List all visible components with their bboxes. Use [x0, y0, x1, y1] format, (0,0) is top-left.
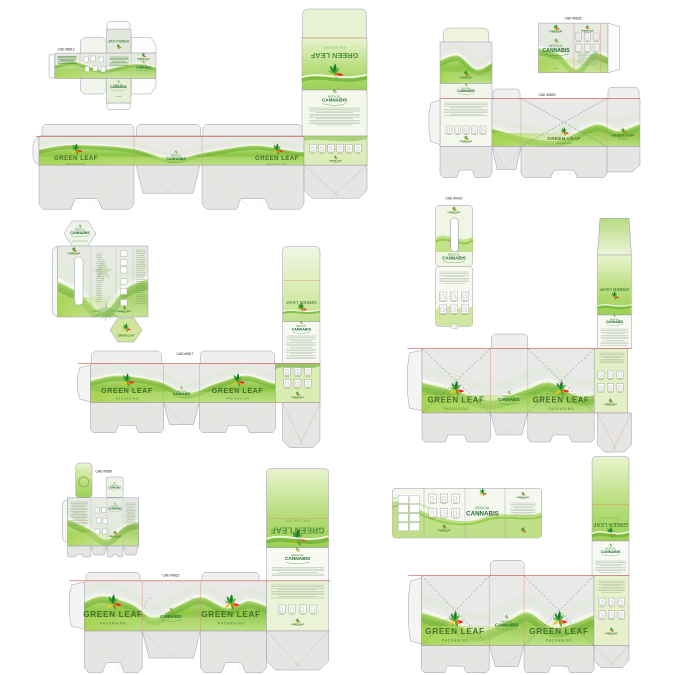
svg-text:CANNABIS: CANNABIS [457, 89, 475, 93]
svg-text:CANNABIS: CANNABIS [108, 506, 122, 510]
svg-text:net wt: net wt [116, 95, 122, 98]
svg-text:CANNABIS: CANNABIS [542, 48, 570, 54]
svg-text:P A C K A G I N G: P A C K A G I N G [100, 621, 126, 625]
svg-text:CANNABIS: CANNABIS [442, 255, 465, 260]
svg-text:GREEN LEAF: GREEN LEAF [550, 30, 564, 33]
svg-text:P A C K A G I N G: P A C K A G I N G [323, 46, 345, 50]
svg-text:CAD #9420: CAD #9420 [445, 197, 462, 201]
svg-text:GREEN LEAF: GREEN LEAF [604, 403, 618, 406]
svg-text:GREEN LEAF: GREEN LEAF [310, 51, 358, 60]
svg-text:GREEN LEAF: GREEN LEAF [108, 39, 129, 43]
svg-text:CANNABIS: CANNABIS [110, 85, 127, 89]
svg-text:GREEN LEAF: GREEN LEAF [101, 387, 153, 395]
svg-text:GREEN LEAF: GREEN LEAF [68, 252, 82, 255]
svg-text:GREEN LEAF: GREEN LEAF [600, 287, 630, 292]
svg-text:CANNABIS: CANNABIS [108, 486, 121, 489]
svg-text:GREEN LEAF: GREEN LEAF [592, 521, 627, 527]
svg-text:CAD #9817: CAD #9817 [176, 352, 193, 356]
svg-text:MEDICAL: MEDICAL [475, 506, 490, 510]
svg-text:CANNABIS: CANNABIS [601, 550, 621, 554]
svg-text:GREEN LEAF: GREEN LEAF [118, 334, 135, 338]
svg-text:CAD #9825: CAD #9825 [564, 17, 581, 21]
svg-text:P A C K A G I N G: P A C K A G I N G [546, 638, 572, 642]
svg-text:GREEN LEAF: GREEN LEAF [533, 396, 590, 405]
svg-text:GREEN LEAF: GREEN LEAF [329, 159, 343, 162]
svg-text:GREEN LEAF: GREEN LEAF [109, 535, 123, 538]
svg-text:GREEN LEAF: GREEN LEAF [611, 134, 634, 138]
svg-text:GREEN LEAF: GREEN LEAF [605, 632, 619, 635]
svg-text:CAD #9587: CAD #9587 [95, 469, 112, 473]
svg-text:GREEN LEAF: GREEN LEAF [212, 387, 264, 395]
svg-text:CANNABIS: CANNABIS [606, 320, 624, 324]
svg-text:P A C K A G I N G: P A C K A G I N G [218, 621, 244, 625]
svg-text:GREEN LEAF: GREEN LEAF [460, 76, 474, 79]
svg-text:GREEN LEAF: GREEN LEAF [581, 29, 595, 32]
svg-text:CANNABIS: CANNABIS [173, 392, 191, 396]
svg-text:GREEN LEAF: GREEN LEAF [428, 396, 485, 405]
svg-text:GREEN LEAF: GREEN LEAF [255, 156, 299, 162]
svg-text:CANNABIS: CANNABIS [70, 231, 90, 235]
svg-text:CANNABIS: CANNABIS [322, 98, 348, 104]
svg-text:CANNABIS: CANNABIS [466, 511, 499, 518]
svg-text:GREEN LEAF: GREEN LEAF [448, 211, 462, 214]
svg-text:GREEN LEAF: GREEN LEAF [291, 623, 305, 626]
svg-text:CAD #8613: CAD #8613 [57, 48, 74, 52]
svg-text:CANNABIS: CANNABIS [285, 556, 311, 562]
svg-text:GREEN LEAF: GREEN LEAF [438, 529, 452, 532]
svg-text:GREEN LEAF: GREEN LEAF [83, 610, 142, 619]
svg-text:GREEN LEAF: GREEN LEAF [425, 627, 484, 636]
svg-text:P A C K A G I N G: P A C K A G I N G [116, 397, 139, 401]
svg-text:CAD #9829: CAD #9829 [538, 93, 555, 97]
svg-text:P A C K A G I N G: P A C K A G I N G [444, 407, 469, 411]
svg-text:P A C K A G I N G: P A C K A G I N G [549, 407, 574, 411]
svg-text:CANNABIS: CANNABIS [166, 157, 186, 161]
svg-text:GREEN LEAF: GREEN LEAF [137, 57, 151, 60]
svg-text:GREEN LEAF: GREEN LEAF [291, 396, 305, 399]
svg-text:GREEN LEAF: GREEN LEAF [118, 310, 132, 313]
svg-text:GREEN LEAF: GREEN LEAF [460, 140, 474, 143]
svg-text:GREEN LEAF: GREEN LEAF [547, 136, 581, 141]
svg-text:CANNABIS: CANNABIS [292, 328, 312, 332]
svg-text:CANNABIS: CANNABIS [136, 66, 152, 70]
svg-text:P A C K A G I N G: P A C K A G I N G [557, 142, 572, 145]
svg-text:CANNABIS: CANNABIS [498, 397, 520, 402]
svg-text:P A C K A G I N G: P A C K A G I N G [602, 517, 620, 520]
svg-text:GREEN LEAF: GREEN LEAF [529, 627, 588, 636]
svg-text:P A C K A G I N G: P A C K A G I N G [284, 519, 310, 523]
svg-text:GREEN LEAF: GREEN LEAF [517, 496, 531, 499]
svg-text:P A C K A G I N G: P A C K A G I N G [226, 397, 249, 401]
svg-text:CANNABIS: CANNABIS [160, 614, 182, 619]
svg-text:net wt: net wt [553, 67, 559, 70]
svg-text:GREEN LEAF: GREEN LEAF [201, 610, 260, 619]
svg-text:CANNABIS: CANNABIS [495, 622, 518, 627]
svg-text:P A C K A G I N G: P A C K A G I N G [442, 638, 468, 642]
svg-text:GREEN LEAF: GREEN LEAF [54, 156, 98, 162]
svg-text:CAD #9822: CAD #9822 [162, 574, 179, 578]
